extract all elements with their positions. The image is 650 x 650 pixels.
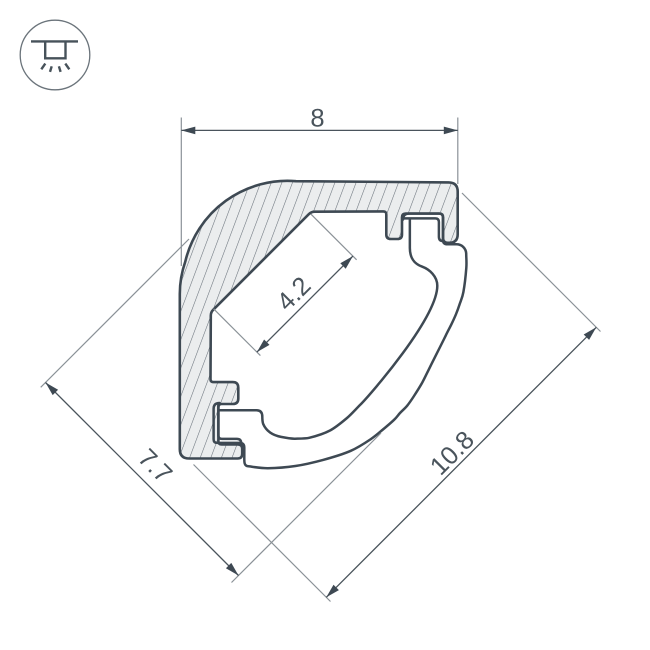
- svg-text:8: 8: [310, 105, 324, 133]
